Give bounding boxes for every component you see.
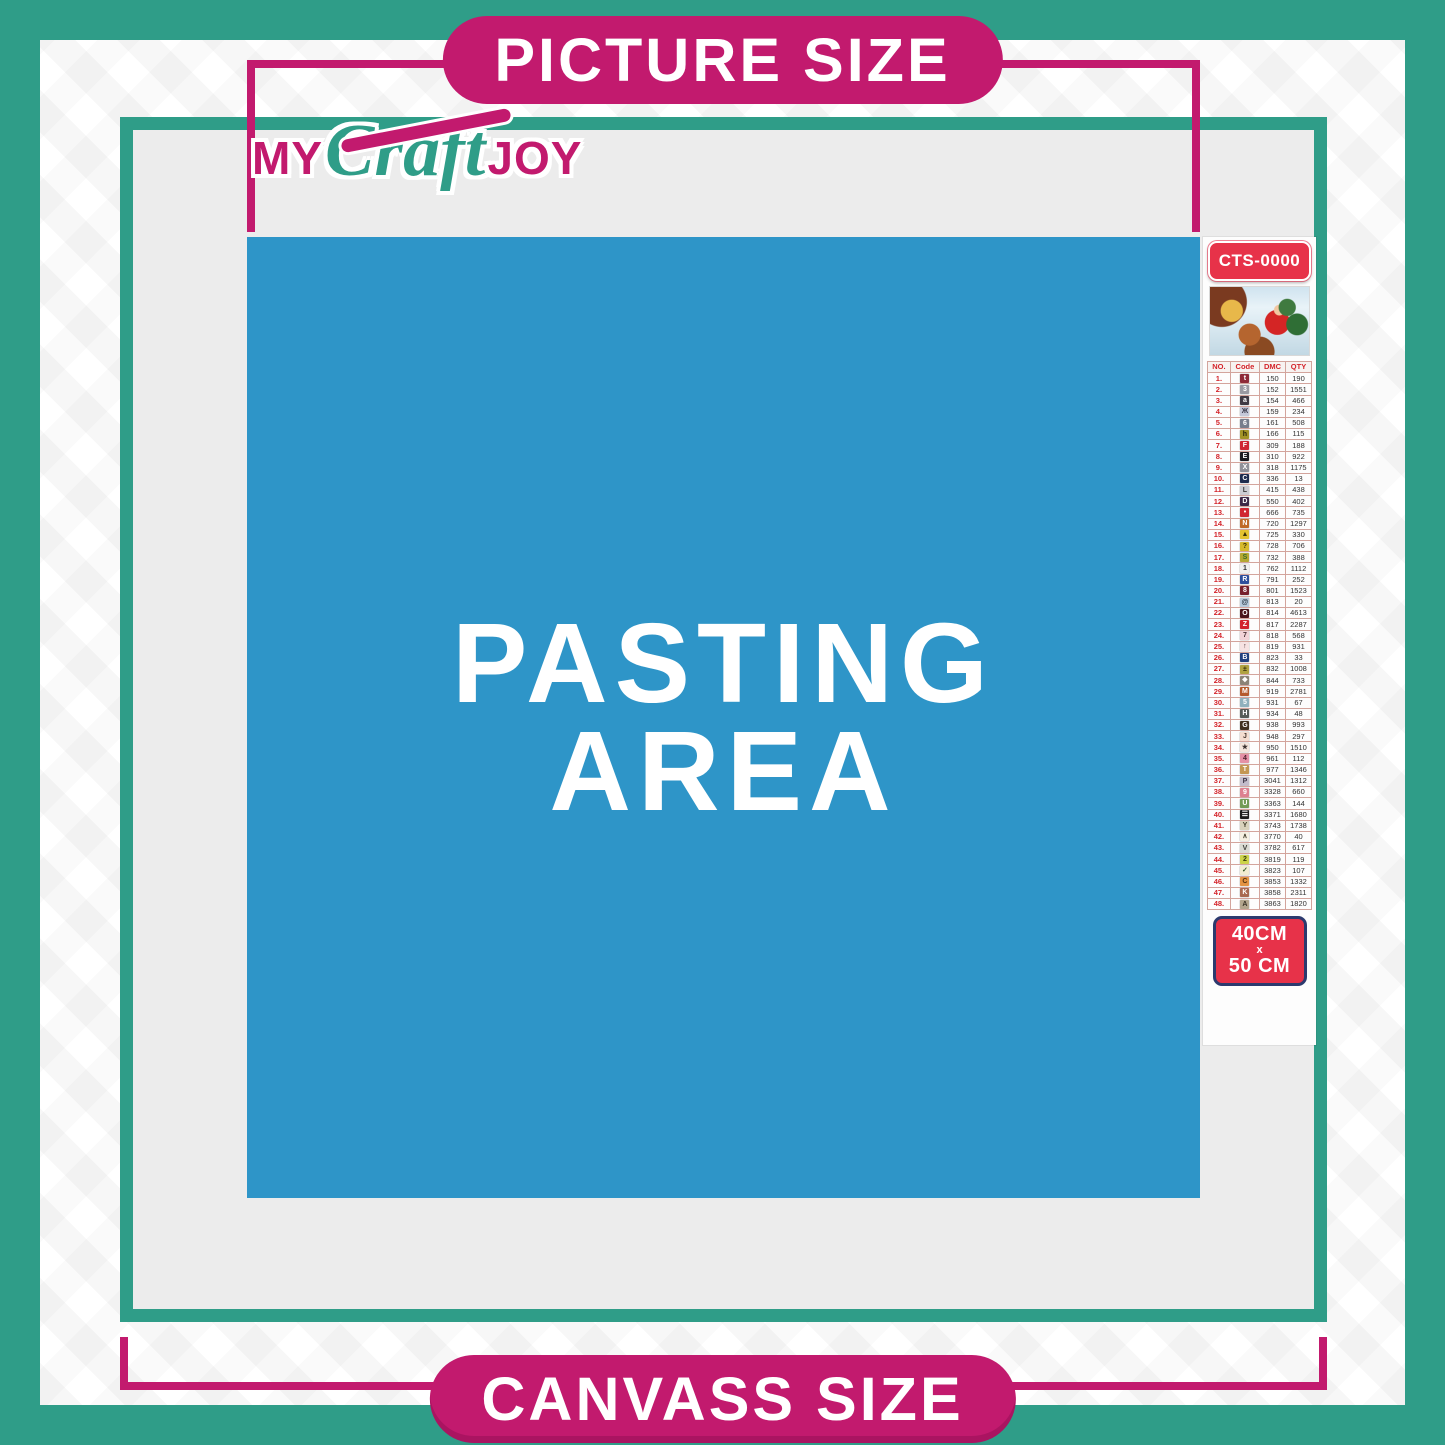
cell-qty: 660 [1285, 787, 1311, 798]
color-table-row: 26.B82333 [1208, 652, 1312, 663]
cell-dmc: 732 [1259, 552, 1285, 563]
cell-qty: 13 [1285, 473, 1311, 484]
cell-no: 36. [1208, 764, 1231, 775]
color-table-row: 23.Z8172287 [1208, 619, 1312, 630]
cell-code: B [1230, 652, 1259, 663]
color-symbol-swatch: ★ [1240, 743, 1249, 752]
color-table-row: 2.31521551 [1208, 384, 1312, 395]
color-table-row: 16.?728706 [1208, 541, 1312, 552]
cell-code: ? [1230, 541, 1259, 552]
color-symbol-swatch: ✓ [1240, 866, 1249, 875]
cell-code: Y [1230, 820, 1259, 831]
cell-qty: 188 [1285, 440, 1311, 451]
cell-qty: 1680 [1285, 809, 1311, 820]
color-symbol-swatch: F [1240, 441, 1249, 450]
cell-dmc: 728 [1259, 541, 1285, 552]
color-symbol-swatch: 1 [1240, 564, 1249, 573]
cell-qty: 2781 [1285, 686, 1311, 697]
color-table-row: 36.T9771346 [1208, 764, 1312, 775]
color-symbol-swatch: D [1240, 497, 1249, 506]
color-table-row: 1.t150190 [1208, 373, 1312, 384]
color-symbol-swatch: N [1240, 519, 1249, 528]
cell-no: 27. [1208, 664, 1231, 675]
color-table-row: 11.L415438 [1208, 485, 1312, 496]
cell-no: 40. [1208, 809, 1231, 820]
cell-no: 7. [1208, 440, 1231, 451]
cell-code: Ж [1230, 406, 1259, 417]
cell-code: V [1230, 843, 1259, 854]
color-table-header-row: NO. Code DMC QTY [1208, 362, 1312, 373]
brand-logo: MY Craft JOY [252, 128, 582, 181]
cell-code: S [1230, 552, 1259, 563]
cell-qty: 107 [1285, 865, 1311, 876]
cell-code: 7 [1230, 630, 1259, 641]
cell-code: D [1230, 496, 1259, 507]
cell-dmc: 814 [1259, 608, 1285, 619]
cell-no: 28. [1208, 675, 1231, 686]
color-table-row: 40.☰33711680 [1208, 809, 1312, 820]
cell-code: E [1230, 451, 1259, 462]
cell-qty: 2287 [1285, 619, 1311, 630]
color-table-row: 28.❖844733 [1208, 675, 1312, 686]
size-line1: 40CM [1216, 924, 1304, 945]
cell-code: 9 [1230, 787, 1259, 798]
color-symbol-swatch: M [1240, 687, 1249, 696]
cell-dmc: 3770 [1259, 831, 1285, 842]
cell-no: 9. [1208, 462, 1231, 473]
color-symbol-swatch: 3 [1240, 385, 1249, 394]
cell-dmc: 725 [1259, 529, 1285, 540]
cell-qty: 402 [1285, 496, 1311, 507]
cell-no: 1. [1208, 373, 1231, 384]
cell-code: ∧ [1230, 831, 1259, 842]
color-symbol-swatch: h [1240, 430, 1249, 439]
canvass-size-banner: CANVASS SIZE [429, 1355, 1015, 1443]
pasting-area-label-line2: AREA [549, 718, 897, 825]
color-table-row: 10.C33613 [1208, 473, 1312, 484]
cell-code: G [1230, 720, 1259, 731]
logo-word-my: MY [252, 135, 323, 181]
cell-no: 38. [1208, 787, 1231, 798]
color-table-row: 20.88011523 [1208, 585, 1312, 596]
color-table-row: 46.C38531332 [1208, 876, 1312, 887]
cell-no: 6. [1208, 429, 1231, 440]
cell-dmc: 3863 [1259, 899, 1285, 910]
cell-qty: 33 [1285, 652, 1311, 663]
cell-qty: 115 [1285, 429, 1311, 440]
cell-no: 11. [1208, 485, 1231, 496]
color-table-row: 15.▲725330 [1208, 529, 1312, 540]
cell-qty: 190 [1285, 373, 1311, 384]
color-symbol-swatch: R [1240, 575, 1249, 584]
color-symbol-swatch: O [1240, 609, 1249, 618]
color-symbol-swatch: ± [1240, 665, 1249, 674]
cell-no: 18. [1208, 563, 1231, 574]
cell-qty: 1523 [1285, 585, 1311, 596]
cell-qty: 330 [1285, 529, 1311, 540]
color-table-row: 47.K38582311 [1208, 887, 1312, 898]
color-symbol-swatch: S [1240, 553, 1249, 562]
color-symbol-swatch: K [1240, 888, 1249, 897]
header-qty: QTY [1285, 362, 1311, 373]
cell-qty: 112 [1285, 753, 1311, 764]
cell-dmc: 166 [1259, 429, 1285, 440]
cell-code: 1 [1230, 563, 1259, 574]
color-table-row: 13.•666735 [1208, 507, 1312, 518]
cell-dmc: 938 [1259, 720, 1285, 731]
cell-qty: 1112 [1285, 563, 1311, 574]
cell-no: 8. [1208, 451, 1231, 462]
color-table-row: 9.X3181175 [1208, 462, 1312, 473]
cell-code: 4 [1230, 753, 1259, 764]
cell-dmc: 823 [1259, 652, 1285, 663]
color-symbol-swatch: @ [1240, 598, 1249, 607]
cell-qty: 144 [1285, 798, 1311, 809]
color-table-row: 5.6161508 [1208, 417, 1312, 428]
color-symbol-swatch: T [1240, 765, 1249, 774]
color-table-row: 4.Ж159234 [1208, 406, 1312, 417]
cell-code: K [1230, 887, 1259, 898]
cell-dmc: 844 [1259, 675, 1285, 686]
cell-qty: 1297 [1285, 518, 1311, 529]
color-table-row: 3.a154466 [1208, 395, 1312, 406]
cell-no: 17. [1208, 552, 1231, 563]
cell-no: 23. [1208, 619, 1231, 630]
cell-qty: 1175 [1285, 462, 1311, 473]
color-symbol-swatch: Z [1240, 620, 1249, 629]
color-table-row: 27.±8321008 [1208, 664, 1312, 675]
color-table-row: 48.A38631820 [1208, 899, 1312, 910]
cell-no: 21. [1208, 596, 1231, 607]
cell-code: t [1230, 373, 1259, 384]
cell-code: 6 [1230, 417, 1259, 428]
cell-qty: 733 [1285, 675, 1311, 686]
cell-no: 14. [1208, 518, 1231, 529]
cell-dmc: 336 [1259, 473, 1285, 484]
cell-code: a [1230, 395, 1259, 406]
color-symbol-swatch: ❖ [1240, 676, 1249, 685]
picture-size-line-right [1192, 60, 1200, 232]
color-table-row: 29.M9192781 [1208, 686, 1312, 697]
cell-qty: 508 [1285, 417, 1311, 428]
cell-dmc: 159 [1259, 406, 1285, 417]
color-symbol-swatch: 6 [1240, 419, 1249, 428]
color-table-row: 33.J948297 [1208, 731, 1312, 742]
cell-no: 43. [1208, 843, 1231, 854]
cell-qty: 1346 [1285, 764, 1311, 775]
color-table-body: 1.t1501902.315215513.a1544664.Ж1592345.6… [1208, 373, 1312, 910]
cell-code: L [1230, 485, 1259, 496]
color-symbol-swatch: A [1240, 900, 1249, 909]
color-table-row: 31.H93448 [1208, 708, 1312, 719]
cell-code: T [1230, 764, 1259, 775]
cell-dmc: 813 [1259, 596, 1285, 607]
color-symbol-swatch: ☰ [1240, 810, 1249, 819]
cell-no: 12. [1208, 496, 1231, 507]
color-table-row: 8.E310922 [1208, 451, 1312, 462]
cell-no: 10. [1208, 473, 1231, 484]
cell-no: 13. [1208, 507, 1231, 518]
cell-qty: 706 [1285, 541, 1311, 552]
cell-dmc: 666 [1259, 507, 1285, 518]
color-table-row: 34.★9501510 [1208, 742, 1312, 753]
cell-code: 2 [1230, 854, 1259, 865]
header-no: NO. [1208, 362, 1231, 373]
cell-no: 42. [1208, 831, 1231, 842]
cell-code: ✓ [1230, 865, 1259, 876]
cell-qty: 438 [1285, 485, 1311, 496]
color-table-row: 42.∧377040 [1208, 831, 1312, 842]
logo-word-joy: JOY [487, 135, 582, 181]
header-code: Code [1230, 362, 1259, 373]
pasting-area-label-line1: PASTING [452, 610, 995, 717]
cell-dmc: 977 [1259, 764, 1285, 775]
cell-qty: 1312 [1285, 775, 1311, 786]
color-symbol-swatch: J [1240, 732, 1249, 741]
cell-no: 37. [1208, 775, 1231, 786]
color-table-row: 24.7818568 [1208, 630, 1312, 641]
cell-dmc: 931 [1259, 697, 1285, 708]
color-table-row: 39.U3363144 [1208, 798, 1312, 809]
cell-code: h [1230, 429, 1259, 440]
cell-code: ☰ [1230, 809, 1259, 820]
cell-code: C [1230, 473, 1259, 484]
cell-qty: 20 [1285, 596, 1311, 607]
cell-no: 47. [1208, 887, 1231, 898]
cell-qty: 993 [1285, 720, 1311, 731]
cell-dmc: 3743 [1259, 820, 1285, 831]
cell-no: 24. [1208, 630, 1231, 641]
cell-qty: 2311 [1285, 887, 1311, 898]
cell-dmc: 150 [1259, 373, 1285, 384]
cell-no: 26. [1208, 652, 1231, 663]
picture-size-banner: PICTURE SIZE [442, 16, 1002, 104]
cell-no: 32. [1208, 720, 1231, 731]
cell-no: 20. [1208, 585, 1231, 596]
cell-qty: 297 [1285, 731, 1311, 742]
color-symbol-swatch: V [1240, 844, 1249, 853]
cell-code: J [1230, 731, 1259, 742]
cell-qty: 4613 [1285, 608, 1311, 619]
cell-qty: 617 [1285, 843, 1311, 854]
color-symbol-swatch: U [1240, 799, 1249, 808]
color-symbol-swatch: L [1240, 486, 1249, 495]
cell-code: M [1230, 686, 1259, 697]
header-dmc: DMC [1259, 362, 1285, 373]
color-table-row: 45.✓3823107 [1208, 865, 1312, 876]
cell-code: ❖ [1230, 675, 1259, 686]
cell-no: 35. [1208, 753, 1231, 764]
cell-no: 39. [1208, 798, 1231, 809]
cell-dmc: 948 [1259, 731, 1285, 742]
cell-no: 41. [1208, 820, 1231, 831]
cell-code: F [1230, 440, 1259, 451]
cell-no: 31. [1208, 708, 1231, 719]
cell-qty: 1551 [1285, 384, 1311, 395]
cell-qty: 735 [1285, 507, 1311, 518]
cell-dmc: 161 [1259, 417, 1285, 428]
cell-code: • [1230, 507, 1259, 518]
cell-qty: 1008 [1285, 664, 1311, 675]
cell-dmc: 934 [1259, 708, 1285, 719]
cell-dmc: 3041 [1259, 775, 1285, 786]
cell-dmc: 3853 [1259, 876, 1285, 887]
cell-code: ↑ [1230, 641, 1259, 652]
cell-qty: 48 [1285, 708, 1311, 719]
cell-qty: 568 [1285, 630, 1311, 641]
cell-dmc: 154 [1259, 395, 1285, 406]
color-symbol-swatch: ↑ [1240, 642, 1249, 651]
cell-no: 33. [1208, 731, 1231, 742]
cell-no: 4. [1208, 406, 1231, 417]
canvass-size-tick-right [1319, 1337, 1327, 1390]
cell-qty: 1820 [1285, 899, 1311, 910]
cell-qty: 40 [1285, 831, 1311, 842]
color-table-row: 35.4961112 [1208, 753, 1312, 764]
cell-dmc: 3328 [1259, 787, 1285, 798]
color-table-row: 19.R791252 [1208, 574, 1312, 585]
cell-code: H [1230, 708, 1259, 719]
cell-no: 30. [1208, 697, 1231, 708]
cell-code: Z [1230, 619, 1259, 630]
cell-qty: 234 [1285, 406, 1311, 417]
cell-qty: 1738 [1285, 820, 1311, 831]
color-table-row: 18.17621112 [1208, 563, 1312, 574]
color-symbol-swatch: 8 [1240, 586, 1249, 595]
color-symbol-swatch: 5 [1240, 698, 1249, 707]
color-symbol-swatch: Y [1240, 821, 1249, 830]
color-symbol-swatch: 9 [1240, 788, 1249, 797]
cell-dmc: 801 [1259, 585, 1285, 596]
color-symbol-swatch: E [1240, 452, 1249, 461]
cell-qty: 1510 [1285, 742, 1311, 753]
cell-code: ★ [1230, 742, 1259, 753]
poster-canvas-layout: PASTING AREA MY Craft JOY CTS-0000 NO. C… [0, 0, 1445, 1445]
color-table-row: 6.h166115 [1208, 429, 1312, 440]
cell-dmc: 818 [1259, 630, 1285, 641]
cell-code: 3 [1230, 384, 1259, 395]
dmc-color-table: NO. Code DMC QTY 1.t1501902.315215513.a1… [1207, 361, 1312, 910]
color-symbol-swatch: ∧ [1240, 832, 1249, 841]
product-preview-image [1209, 286, 1310, 356]
color-table-row: 25.↑819931 [1208, 641, 1312, 652]
color-symbol-swatch: P [1240, 777, 1249, 786]
color-table-row: 7.F309188 [1208, 440, 1312, 451]
cell-no: 16. [1208, 541, 1231, 552]
color-table-row: 12.D550402 [1208, 496, 1312, 507]
color-chart-column: CTS-0000 NO. Code DMC QTY 1.t1501902.315… [1203, 237, 1316, 1045]
color-symbol-swatch: B [1240, 653, 1249, 662]
color-table-row: 43.V3782617 [1208, 843, 1312, 854]
color-symbol-swatch: Ж [1240, 407, 1249, 416]
cell-dmc: 950 [1259, 742, 1285, 753]
cell-dmc: 817 [1259, 619, 1285, 630]
pasting-area: PASTING AREA [247, 237, 1200, 1198]
color-symbol-swatch: 4 [1240, 754, 1249, 763]
color-table-row: 41.Y37431738 [1208, 820, 1312, 831]
canvas-size-badge: 40CM x 50 CM [1213, 916, 1307, 986]
color-symbol-swatch: • [1240, 508, 1249, 517]
cell-dmc: 550 [1259, 496, 1285, 507]
color-table-row: 30.593167 [1208, 697, 1312, 708]
color-symbol-swatch: ? [1240, 542, 1249, 551]
cell-dmc: 3782 [1259, 843, 1285, 854]
color-table-row: 38.93328660 [1208, 787, 1312, 798]
cell-dmc: 961 [1259, 753, 1285, 764]
cell-code: C [1230, 876, 1259, 887]
cell-code: @ [1230, 596, 1259, 607]
cell-code: 8 [1230, 585, 1259, 596]
cell-code: X [1230, 462, 1259, 473]
cell-code: ▲ [1230, 529, 1259, 540]
cell-dmc: 152 [1259, 384, 1285, 395]
cell-code: ± [1230, 664, 1259, 675]
cell-no: 25. [1208, 641, 1231, 652]
color-symbol-swatch: 7 [1240, 631, 1249, 640]
color-table-row: 37.P30411312 [1208, 775, 1312, 786]
cell-qty: 1332 [1285, 876, 1311, 887]
cell-dmc: 415 [1259, 485, 1285, 496]
color-symbol-swatch: a [1240, 396, 1249, 405]
cell-qty: 252 [1285, 574, 1311, 585]
cell-dmc: 762 [1259, 563, 1285, 574]
cell-no: 46. [1208, 876, 1231, 887]
cell-no: 29. [1208, 686, 1231, 697]
cell-code: R [1230, 574, 1259, 585]
cell-no: 5. [1208, 417, 1231, 428]
cell-no: 15. [1208, 529, 1231, 540]
cell-dmc: 3371 [1259, 809, 1285, 820]
cell-dmc: 318 [1259, 462, 1285, 473]
canvass-size-tick-left [120, 1337, 128, 1390]
color-table-row: 21.@81320 [1208, 596, 1312, 607]
color-symbol-swatch: C [1240, 474, 1249, 483]
cell-qty: 922 [1285, 451, 1311, 462]
cell-no: 44. [1208, 854, 1231, 865]
color-table-row: 22.O8144613 [1208, 608, 1312, 619]
cell-no: 3. [1208, 395, 1231, 406]
cell-code: 5 [1230, 697, 1259, 708]
color-symbol-swatch: G [1240, 721, 1249, 730]
color-symbol-swatch: C [1240, 877, 1249, 886]
cell-dmc: 3819 [1259, 854, 1285, 865]
cell-dmc: 3858 [1259, 887, 1285, 898]
cell-dmc: 919 [1259, 686, 1285, 697]
cell-dmc: 819 [1259, 641, 1285, 652]
cell-no: 19. [1208, 574, 1231, 585]
color-table-row: 17.S732388 [1208, 552, 1312, 563]
color-table-row: 44.23819119 [1208, 854, 1312, 865]
color-symbol-swatch: 2 [1240, 855, 1249, 864]
cell-qty: 931 [1285, 641, 1311, 652]
cell-no: 22. [1208, 608, 1231, 619]
cell-code: O [1230, 608, 1259, 619]
cell-no: 34. [1208, 742, 1231, 753]
product-code-badge: CTS-0000 [1208, 241, 1311, 281]
cell-dmc: 310 [1259, 451, 1285, 462]
size-line3: 50 CM [1216, 956, 1304, 977]
color-symbol-swatch: H [1240, 709, 1249, 718]
cell-dmc: 3363 [1259, 798, 1285, 809]
cell-qty: 388 [1285, 552, 1311, 563]
color-symbol-swatch: X [1240, 463, 1249, 472]
color-table-row: 32.G938993 [1208, 720, 1312, 731]
cell-no: 48. [1208, 899, 1231, 910]
cell-dmc: 791 [1259, 574, 1285, 585]
cell-code: N [1230, 518, 1259, 529]
cell-qty: 466 [1285, 395, 1311, 406]
cell-qty: 67 [1285, 697, 1311, 708]
